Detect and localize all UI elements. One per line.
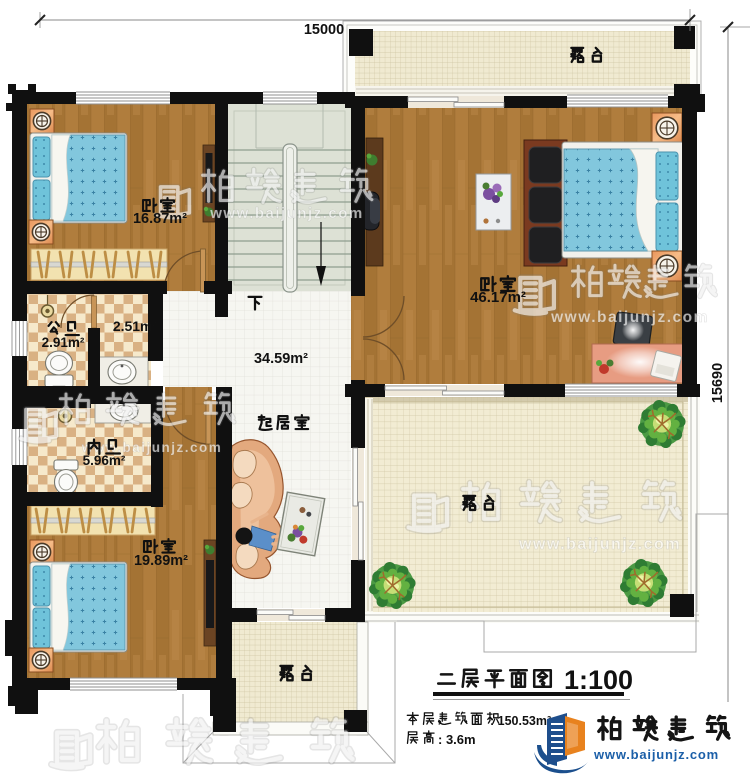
svg-text:2.51m²: 2.51m² bbox=[113, 318, 158, 334]
svg-text:15690: 15690 bbox=[710, 363, 726, 403]
svg-text:2.91m²: 2.91m² bbox=[42, 335, 85, 350]
svg-text:34.59m²: 34.59m² bbox=[254, 351, 308, 367]
svg-text:16.87m²: 16.87m² bbox=[133, 211, 187, 227]
svg-text:46.17m²: 46.17m² bbox=[470, 289, 526, 306]
svg-text:19.89m²: 19.89m² bbox=[134, 553, 188, 569]
svg-text:www.baijunjz.com: www.baijunjz.com bbox=[550, 309, 709, 326]
svg-text:www.baijunjz.com: www.baijunjz.com bbox=[593, 747, 719, 762]
svg-text:15000: 15000 bbox=[304, 22, 344, 38]
svg-text:1:100: 1:100 bbox=[564, 665, 633, 695]
svg-text:www.baijunjz.com: www.baijunjz.com bbox=[518, 536, 681, 553]
svg-text:: 150.53m²: : 150.53m² bbox=[490, 714, 551, 728]
svg-text:www.baijunjz.com: www.baijunjz.com bbox=[209, 205, 363, 222]
svg-text:: 3.6m: : 3.6m bbox=[438, 732, 476, 747]
svg-text:5.96m²: 5.96m² bbox=[83, 453, 126, 468]
